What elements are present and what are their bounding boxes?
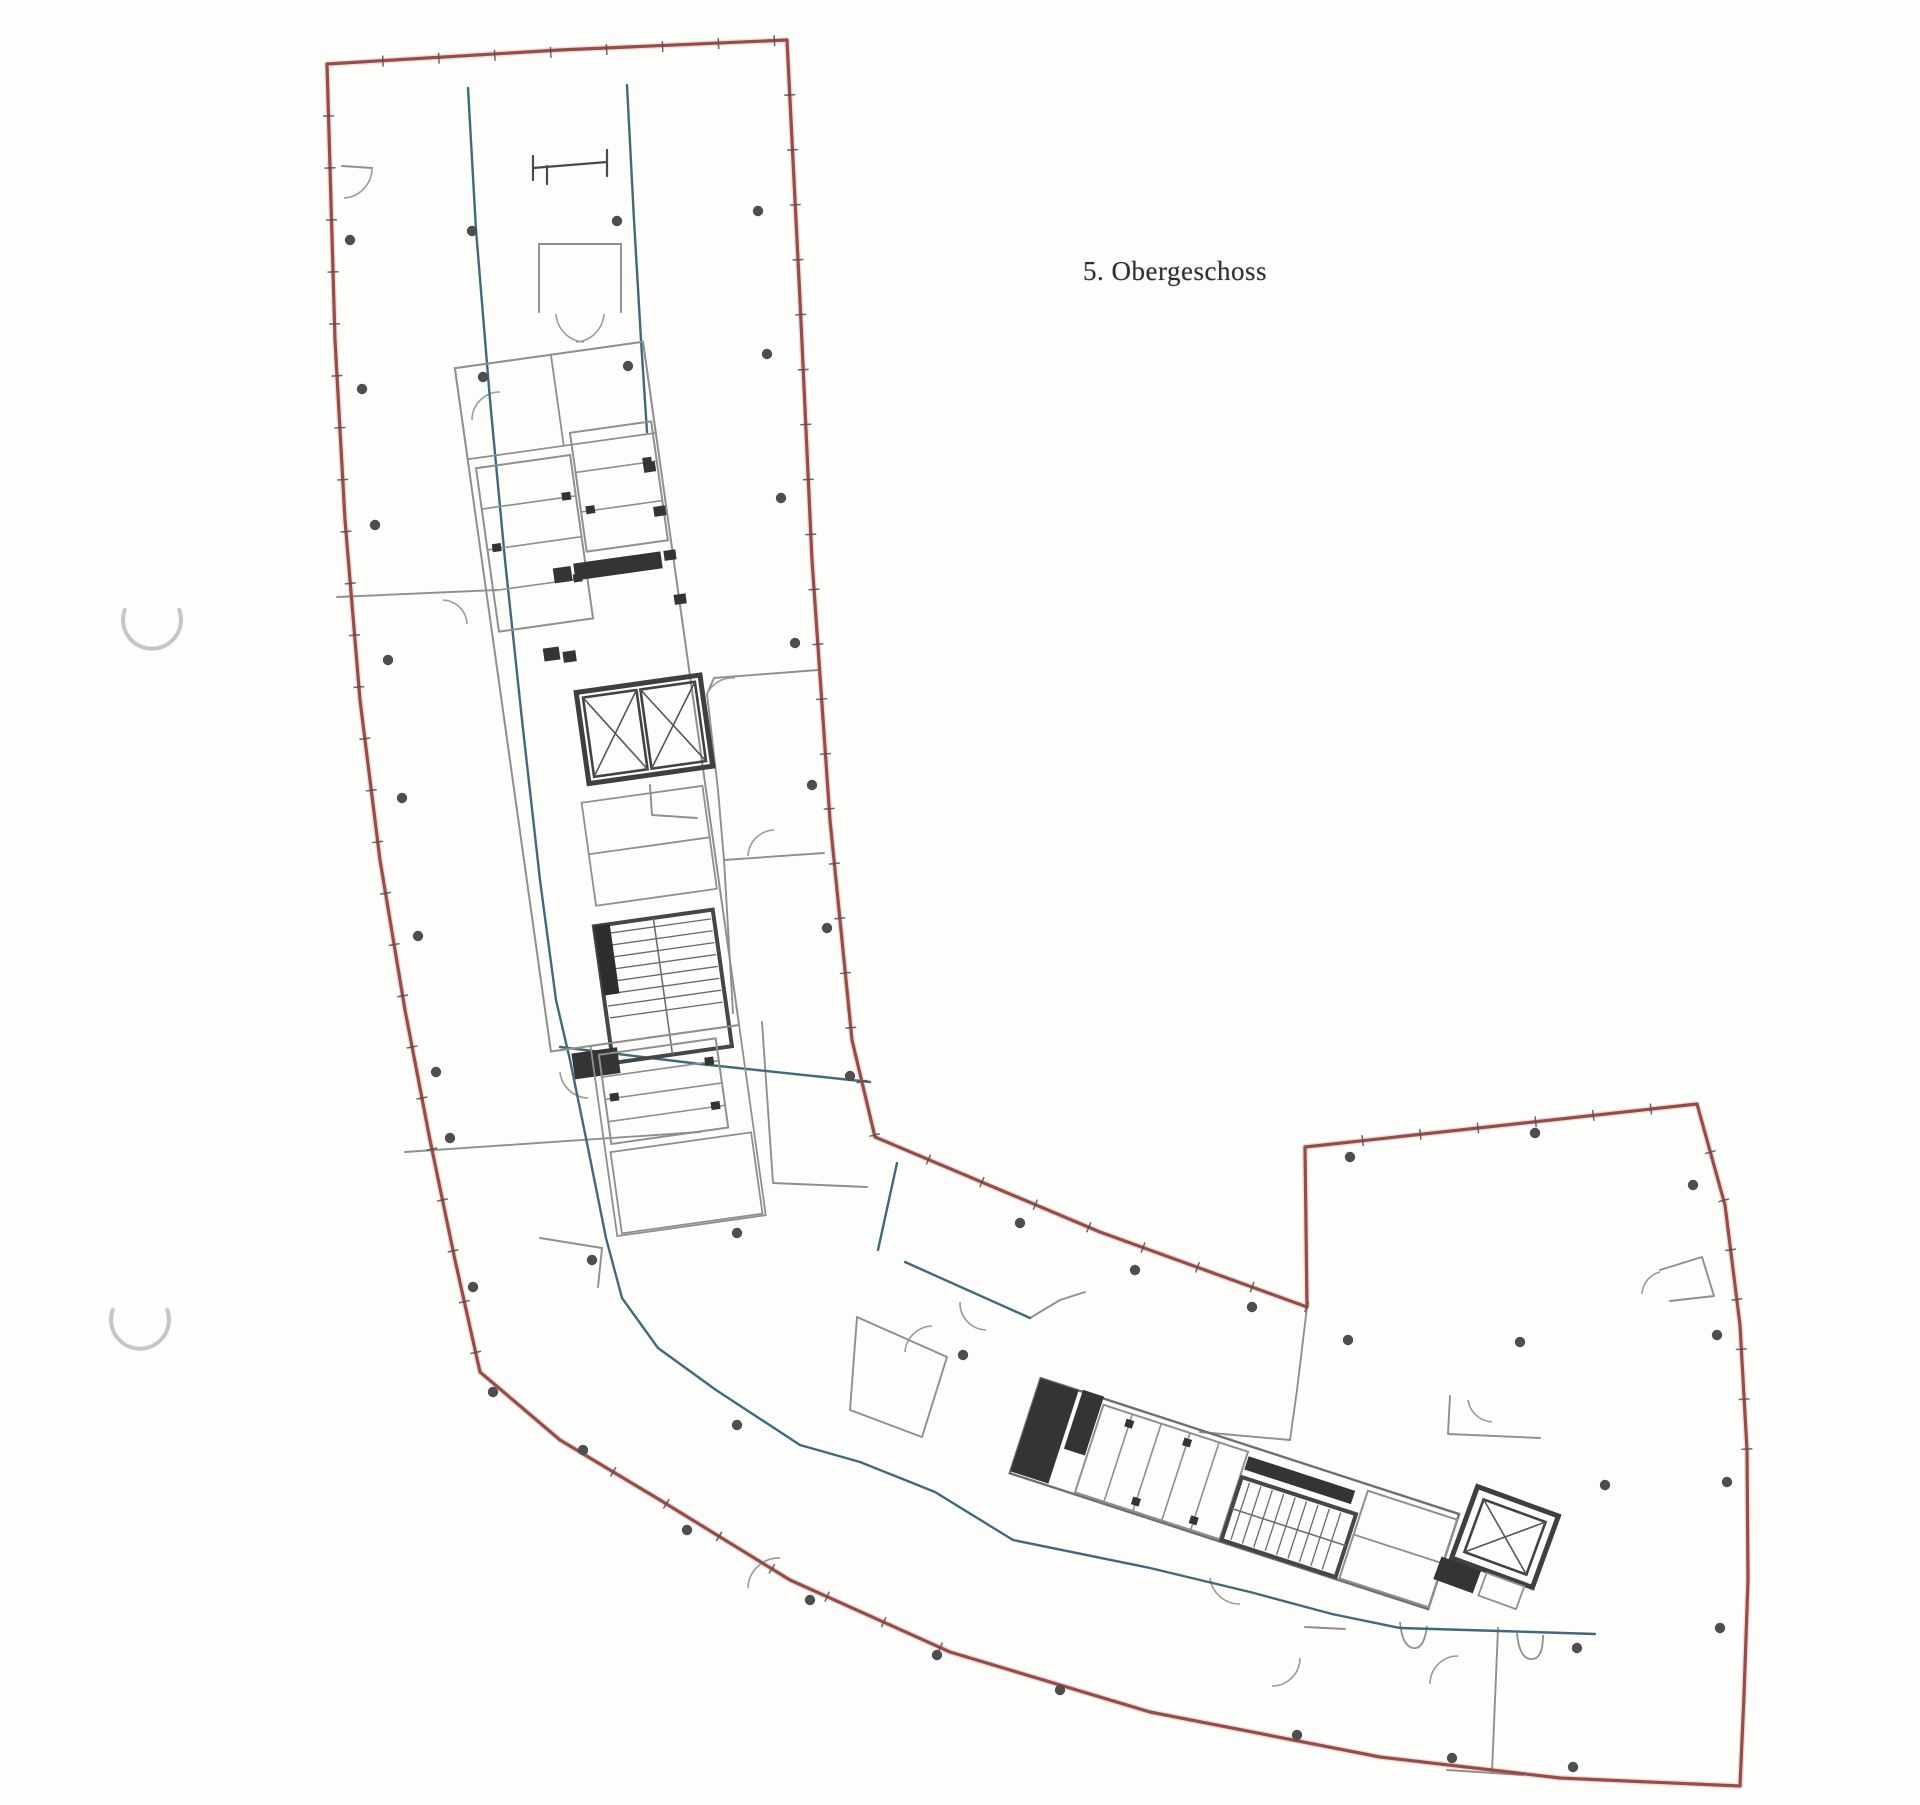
corridor-lines xyxy=(468,85,1595,1634)
corridor-line-main xyxy=(468,88,1595,1634)
core-cell-line xyxy=(589,837,710,854)
corridor-stub-b xyxy=(905,1262,1030,1318)
core-cell-black xyxy=(553,566,573,583)
building-outline xyxy=(327,40,1748,1786)
core-cell-black xyxy=(653,505,666,517)
core-cell-stalls xyxy=(476,455,593,632)
core-cell-rect xyxy=(1478,1573,1524,1609)
interior-partitions xyxy=(337,166,1714,1775)
core-cell-line xyxy=(551,355,564,446)
door-swing-arcs xyxy=(344,168,1660,1686)
core-cell-black xyxy=(643,461,656,473)
core-cell-black xyxy=(543,646,561,661)
core-cell-rect xyxy=(455,342,656,460)
i-beam-symbol xyxy=(533,150,607,184)
corridor-stub-a xyxy=(878,1163,897,1250)
punch-hole-marks xyxy=(111,610,181,1349)
core-cell-black xyxy=(674,593,687,605)
floor-title: 5. Obergeschoss xyxy=(1083,256,1267,287)
core-cell-black xyxy=(573,551,663,580)
core-cell-black xyxy=(562,650,576,663)
core-cell-x xyxy=(583,690,648,777)
core-cell-black xyxy=(663,549,676,561)
core-cell-stalls xyxy=(570,421,668,551)
core-cell-black xyxy=(1010,1378,1078,1484)
core-cell-line xyxy=(1354,1534,1443,1563)
core-cells xyxy=(455,342,1559,1609)
core-cell-stalls xyxy=(1075,1405,1248,1539)
column-dots xyxy=(345,206,1732,1772)
core-cell-x xyxy=(1464,1499,1545,1574)
corridor-line-right xyxy=(627,85,647,432)
floor-plan-drawing xyxy=(0,0,1920,1805)
scanned-floorplan-page: 5. Obergeschoss xyxy=(0,0,1920,1805)
